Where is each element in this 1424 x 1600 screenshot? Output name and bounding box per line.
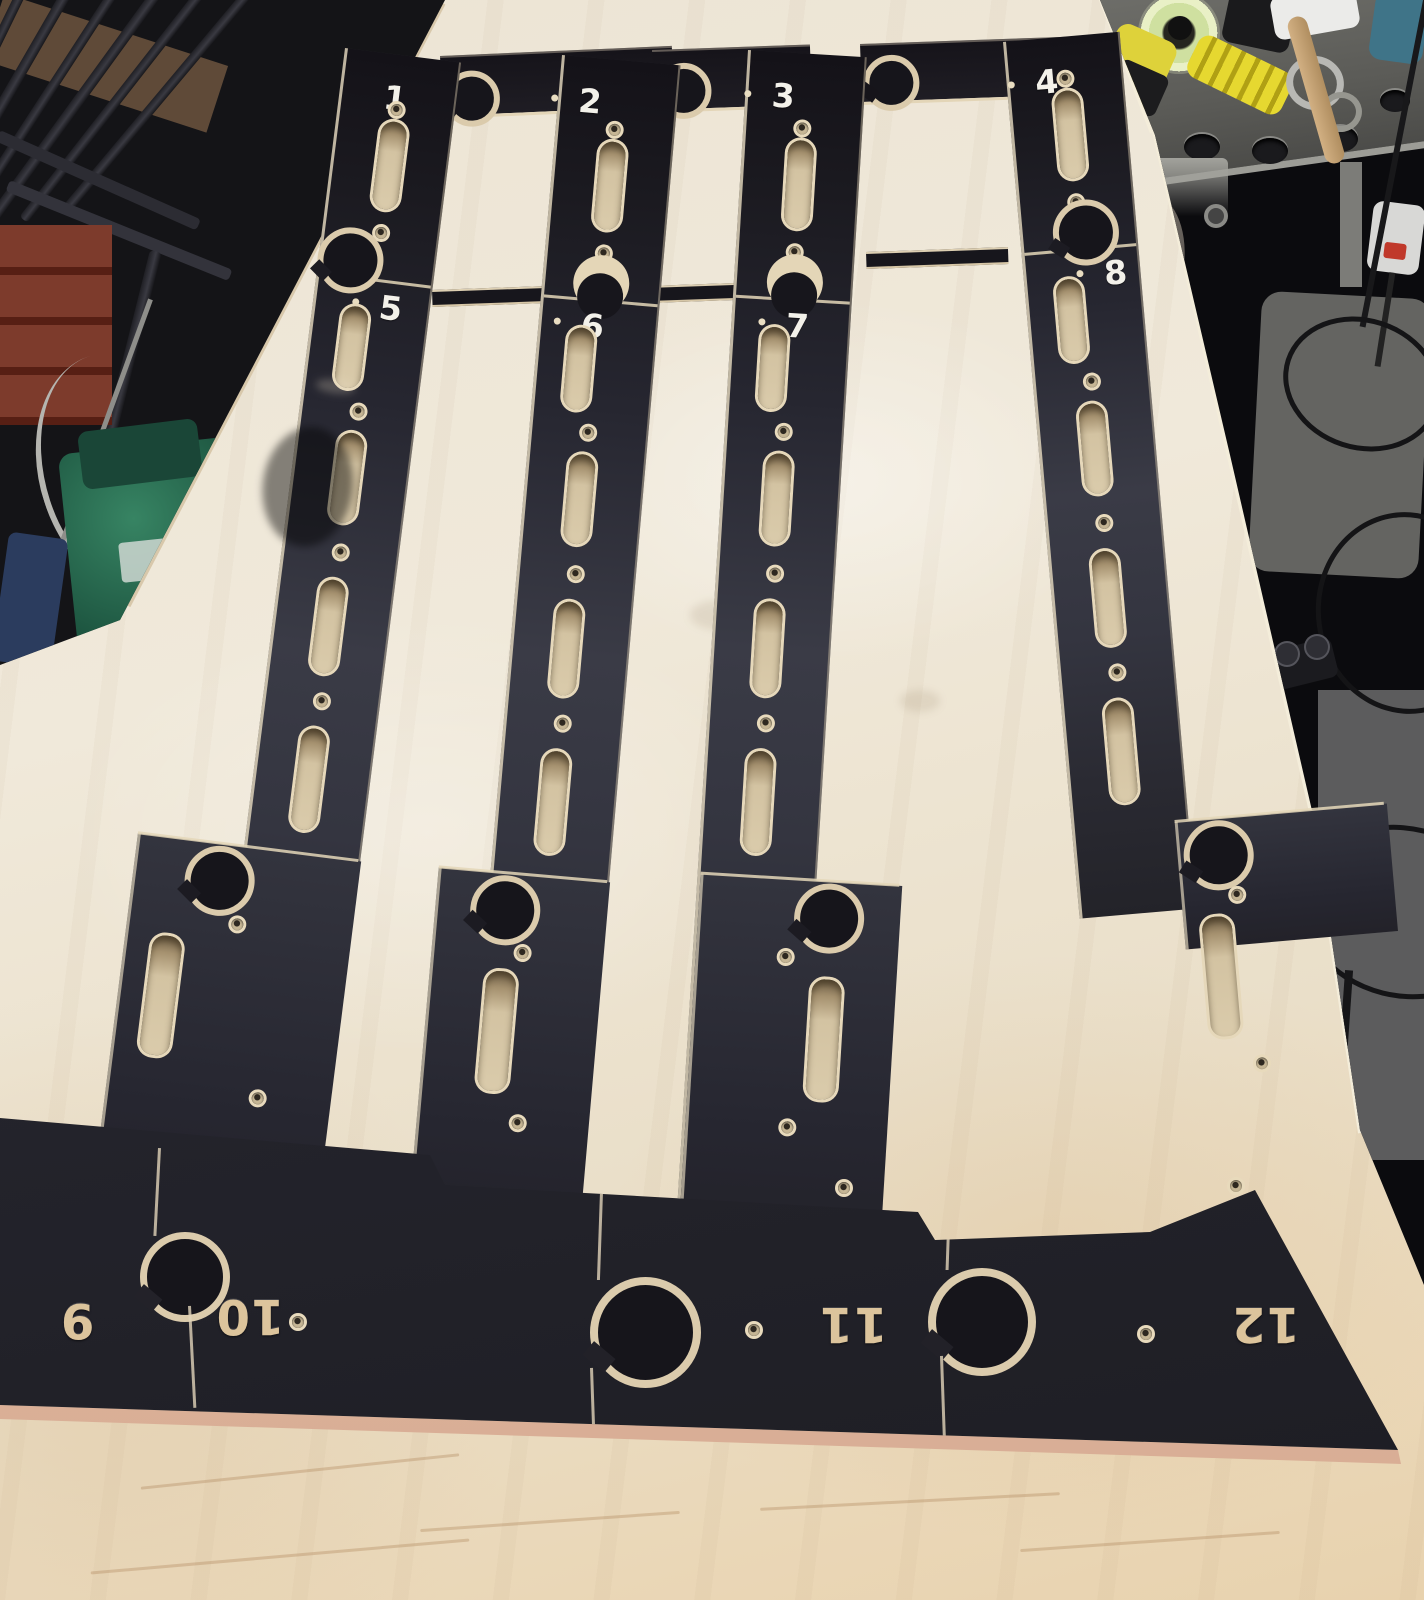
routed-slot: [371, 120, 408, 211]
piece-number-12: 12: [1218, 1296, 1313, 1352]
screw-hole: [748, 1324, 760, 1336]
routed-slot: [761, 453, 792, 544]
routed-slot: [535, 750, 570, 854]
piece-number-9: 9: [42, 1292, 112, 1348]
screw-hole: [292, 1316, 304, 1328]
joint-seam: [940, 1356, 946, 1448]
engraving-dot: [1007, 81, 1015, 89]
screw-hole: [796, 122, 809, 135]
screw-hole: [1111, 666, 1124, 679]
screw-hole: [1098, 517, 1111, 530]
piece-number-11: 11: [808, 1296, 898, 1352]
routed-slot: [742, 750, 774, 853]
piece-number-5: 5: [365, 286, 416, 330]
engraving-dot: [551, 94, 559, 102]
engraving-dot: [553, 317, 561, 325]
joint-seam: [597, 1192, 603, 1280]
screw-hole: [569, 568, 582, 581]
screw-hole: [1230, 1180, 1242, 1192]
screw-hole: [556, 717, 569, 730]
routed-slot: [1078, 403, 1112, 495]
screw-hole: [582, 426, 595, 439]
screw-hole: [608, 123, 621, 136]
routed-slot: [593, 141, 627, 231]
routed-slot: [290, 727, 329, 831]
pipe-cutout-icon: [590, 1277, 701, 1388]
screw-hole: [374, 226, 387, 239]
engraving-dot: [744, 90, 751, 97]
template-rail-piece-1: 15: [201, 48, 461, 1204]
template-rail-piece-3: 37: [678, 50, 867, 1205]
routed-slot: [1055, 278, 1088, 362]
piece-number-10: 10: [205, 1288, 295, 1344]
screw-hole: [777, 426, 790, 439]
screw-hole: [838, 1182, 850, 1194]
routed-slot: [334, 305, 370, 390]
routed-slot: [757, 326, 788, 409]
screw-hole: [1085, 375, 1098, 388]
screw-hole: [315, 695, 328, 708]
routed-slot: [562, 327, 595, 411]
routed-slot: [752, 601, 784, 696]
engraving-dot: [352, 298, 360, 306]
template-rail-piece-2: 26: [462, 55, 681, 1211]
routed-slot: [549, 601, 583, 697]
routed-slot: [1054, 90, 1088, 180]
screw-hole: [352, 405, 365, 418]
joint-seam: [153, 1148, 161, 1236]
routed-slot: [562, 453, 596, 545]
routed-slot: [310, 578, 348, 675]
pipe-cutout-icon: [928, 1268, 1036, 1376]
screw-hole: [1059, 72, 1072, 85]
workshop-photo: 15263748 9 10 11 12: [0, 0, 1424, 1600]
screw-hole: [1140, 1328, 1152, 1340]
piece-number-8: 8: [1091, 251, 1140, 294]
engraving-dot: [758, 318, 765, 325]
screw-hole: [769, 567, 782, 580]
piece-number-2: 2: [565, 80, 614, 123]
screw-hole: [760, 717, 773, 730]
routed-slot: [783, 140, 814, 229]
screw-hole: [334, 546, 347, 559]
piece-number-3: 3: [759, 75, 807, 117]
screw-hole: [1255, 1057, 1268, 1070]
engraving-dot: [1076, 270, 1084, 278]
routed-slot: [1091, 550, 1125, 646]
template-rail-piece-4: 48: [1003, 32, 1196, 919]
routed-slot: [1104, 699, 1139, 803]
